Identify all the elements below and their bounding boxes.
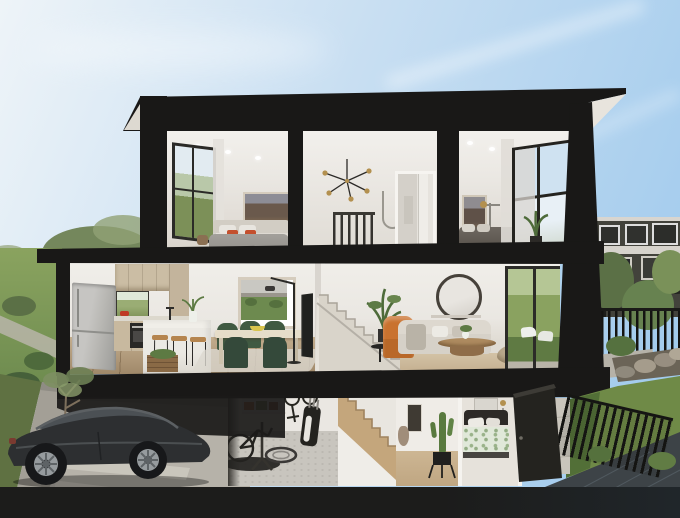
architectural-cutaway-render [0,0,680,518]
black-sedan [6,392,218,492]
open-black-door [505,380,567,486]
bedroom-divider-wall [288,128,303,249]
fence-shrub [648,452,676,470]
car-front-wheel [129,441,167,479]
car-taillight [9,438,16,444]
door-handle [519,436,523,440]
roof-slab [123,88,626,131]
right-wall [558,102,604,372]
hall-divider-wall [437,128,459,249]
foreground-dark-band [0,487,680,518]
upper-left-wall [140,96,167,263]
fence-shrub [588,446,612,462]
car-rear-wheel [25,443,67,485]
roof-soffit-left [124,104,140,130]
mid-floor-slab [37,241,604,264]
